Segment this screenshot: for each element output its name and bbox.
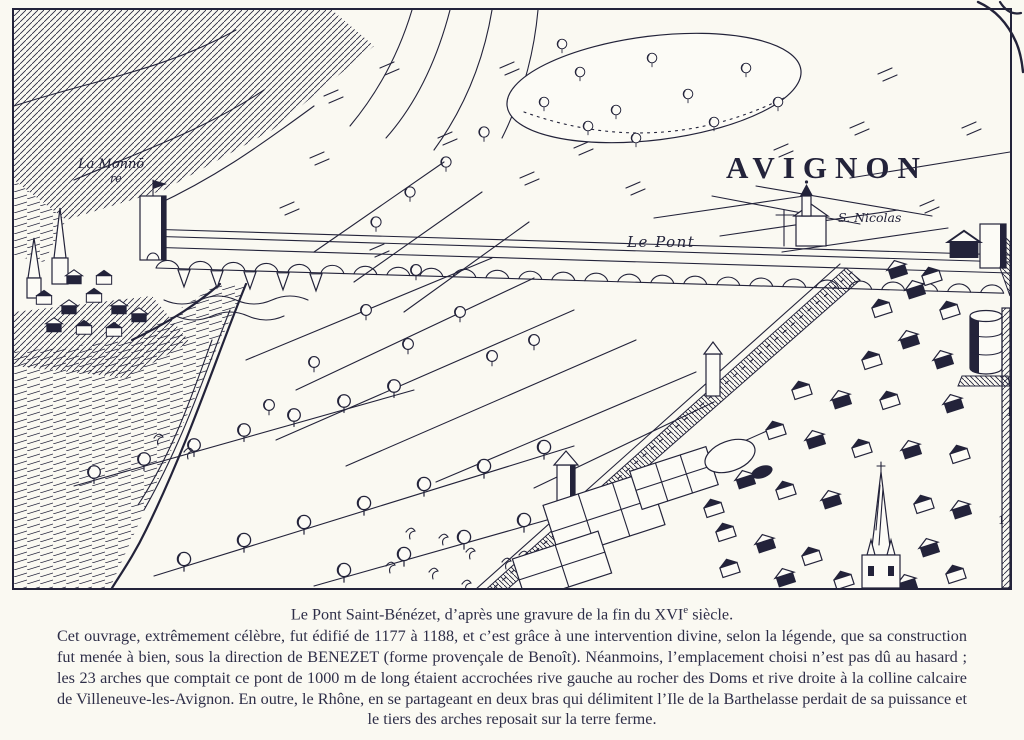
label-ref-17: 17 [1006,406,1010,419]
fields [350,10,538,150]
caption-title-text: Le Pont Saint-Bénézet, d’après une gravu… [291,605,683,623]
hills-top-left [14,10,374,262]
label-la-monno: La Monnō [77,157,144,172]
caption-title: Le Pont Saint-Bénézet, d’après une gravu… [0,600,1024,624]
avignon-city [512,257,1010,588]
slope-streaks [246,152,1010,490]
label-s-nicolas: S. Nicolas [838,210,901,225]
label-avignon: AVIGNON [726,150,928,185]
caption-body: Cet ouvrage, extrêmement célèbre, fut éd… [57,626,967,730]
label-ref-10: 1 0 [998,514,1010,527]
tree-grove [371,18,807,231]
caption: Le Pont Saint-Bénézet, d’après une gravu… [0,600,1024,730]
engraving-frame: AVIGNON [12,8,1012,590]
church [862,462,900,588]
label-la-monno-2: re [110,172,122,185]
engraving-scene: AVIGNON [14,10,1010,588]
caption-title-tail: siècle. [688,605,733,623]
scanned-page: AVIGNON [0,0,1024,740]
label-le-pont: Le Pont [626,233,695,251]
